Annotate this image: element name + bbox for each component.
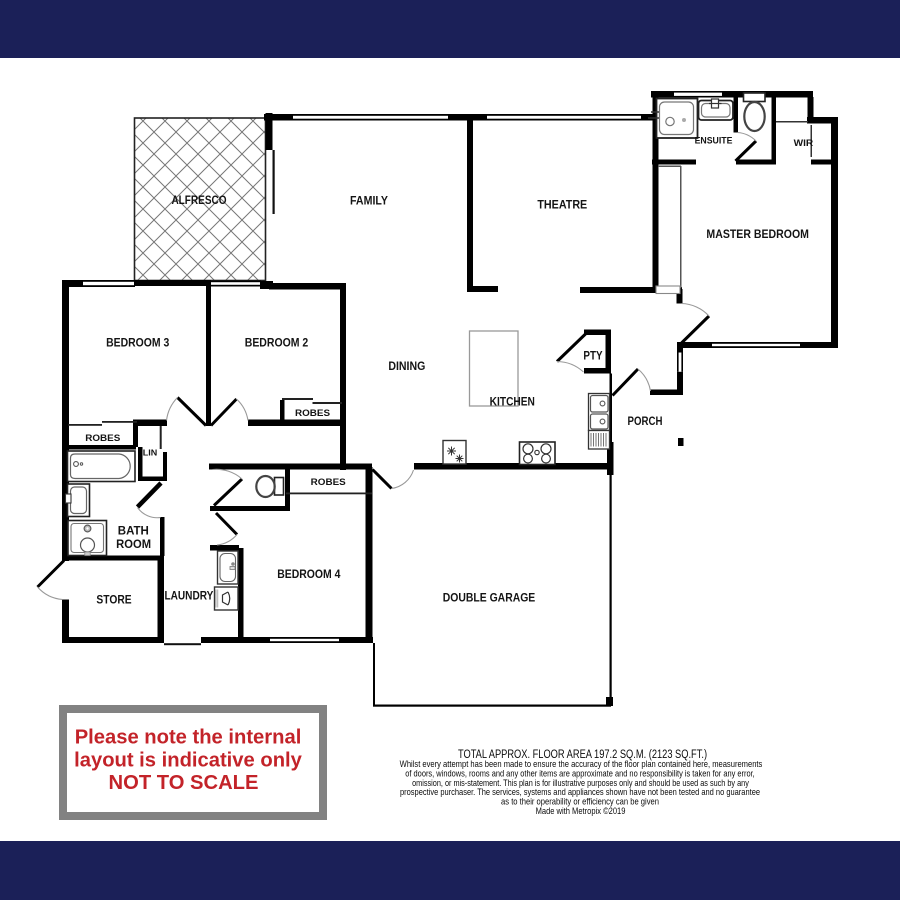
svg-text:layout is indicative only: layout is indicative only: [74, 750, 303, 772]
svg-text:BEDROOM 4: BEDROOM 4: [277, 568, 341, 581]
svg-text:PORCH: PORCH: [628, 415, 663, 428]
svg-text:BEDROOM 2: BEDROOM 2: [245, 337, 309, 350]
svg-text:Whilst every attempt has been: Whilst every attempt has been made to en…: [400, 758, 763, 769]
svg-text:PTY: PTY: [583, 350, 603, 363]
svg-text:KITCHEN: KITCHEN: [490, 396, 535, 409]
svg-text:WIR: WIR: [794, 138, 814, 149]
svg-text:STORE: STORE: [96, 594, 131, 607]
svg-text:FAMILY: FAMILY: [350, 195, 388, 208]
svg-text:omission, or mis-statement. Th: omission, or mis-statement. This plan is…: [412, 778, 750, 788]
svg-text:LAUNDRY: LAUNDRY: [164, 590, 214, 603]
svg-text:DOUBLE GARAGE: DOUBLE GARAGE: [443, 592, 536, 605]
svg-text:ROBES: ROBES: [295, 408, 331, 419]
svg-text:LIN: LIN: [143, 448, 158, 458]
svg-text:DINING: DINING: [388, 361, 425, 374]
svg-text:Please note the internal: Please note the internal: [75, 727, 302, 749]
svg-text:THEATRE: THEATRE: [537, 199, 587, 212]
svg-text:of doors, windows, rooms and a: of doors, windows, rooms and any other i…: [405, 769, 754, 779]
svg-text:Made with Metropix ©2019: Made with Metropix ©2019: [536, 805, 626, 816]
svg-text:ROBES: ROBES: [311, 477, 347, 488]
svg-text:ROOM: ROOM: [116, 539, 151, 551]
svg-text:ENSUITE: ENSUITE: [695, 135, 733, 145]
svg-text:ROBES: ROBES: [85, 433, 121, 444]
svg-text:NOT TO SCALE: NOT TO SCALE: [109, 772, 259, 794]
svg-text:BATH: BATH: [118, 524, 149, 537]
svg-text:ALFRESCO: ALFRESCO: [171, 194, 227, 207]
svg-text:MASTER BEDROOM: MASTER BEDROOM: [706, 228, 809, 241]
svg-text:BEDROOM 3: BEDROOM 3: [106, 337, 169, 350]
